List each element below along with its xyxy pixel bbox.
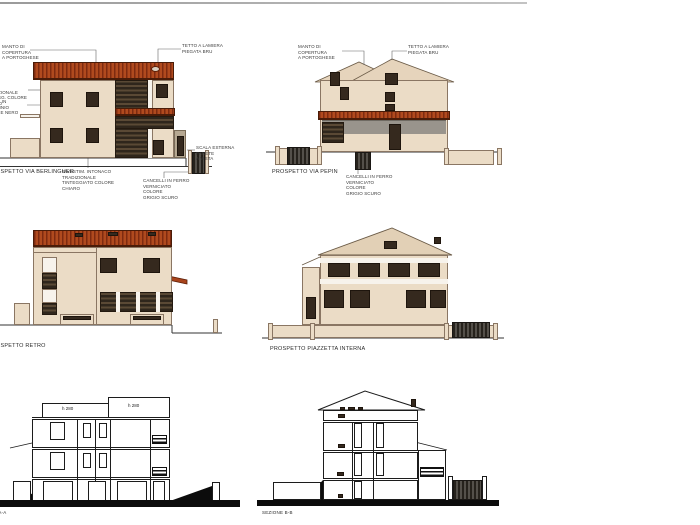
annotation-sheet-metal-roof: TETTO A LAMIERA PIEGATA BRU bbox=[182, 43, 224, 54]
window bbox=[385, 104, 395, 111]
gate bbox=[452, 322, 490, 338]
door bbox=[83, 453, 91, 468]
p1-ground-lines bbox=[0, 158, 212, 167]
p4-annex-roof-line bbox=[302, 257, 320, 265]
drawing-title: PROSPETTO VIA BERLINGUER bbox=[0, 169, 74, 175]
annex-panels bbox=[322, 122, 344, 143]
p5-awning-line bbox=[10, 443, 32, 448]
window bbox=[340, 87, 349, 100]
annex-wall bbox=[13, 481, 31, 502]
radiator-mark bbox=[338, 494, 343, 498]
drawing-title: PROSPETTO PIAZZETTA INTERNA bbox=[270, 346, 365, 352]
window bbox=[385, 92, 395, 102]
door bbox=[354, 423, 362, 448]
interior-wall bbox=[373, 422, 374, 500]
balcony-railing bbox=[115, 116, 174, 129]
ground-opening bbox=[43, 481, 73, 501]
floor-slab bbox=[323, 478, 418, 481]
gate bbox=[453, 480, 482, 500]
low-wall bbox=[10, 138, 40, 158]
attic-mark bbox=[348, 407, 355, 410]
drawing-title: SEZIONE A-A bbox=[0, 510, 6, 515]
annotation-roof-covering: MANTO DI COPERTURA A PORTOGHESE bbox=[2, 44, 44, 61]
window bbox=[50, 92, 63, 107]
height-label: h 280 bbox=[62, 406, 73, 411]
facade-divider bbox=[96, 247, 97, 325]
door bbox=[376, 423, 384, 448]
gate bbox=[287, 147, 310, 165]
gable-window bbox=[330, 72, 340, 86]
floor-slab bbox=[323, 420, 418, 423]
section-body bbox=[323, 410, 418, 500]
radiator-mark bbox=[337, 472, 344, 476]
window bbox=[50, 452, 65, 470]
attic-mark bbox=[340, 407, 345, 410]
planter-shadow bbox=[133, 316, 161, 320]
wall-pillar bbox=[317, 146, 322, 165]
ground-band bbox=[0, 500, 240, 507]
annotation-sheet-metal-roof: TETTO A LAMIERA PIEGATA BRU bbox=[408, 44, 450, 55]
low-wall bbox=[14, 303, 30, 325]
planter-shadow bbox=[63, 316, 91, 320]
panel-prospetto-retro: PROSPETTO RETRO bbox=[0, 215, 240, 360]
french-window bbox=[42, 289, 57, 303]
porch-column bbox=[156, 292, 160, 312]
panel-prospetto-piazzetta: PROSPETTO PIAZZETTA INTERNA bbox=[262, 215, 504, 360]
door bbox=[99, 423, 107, 438]
wall-pillar bbox=[493, 323, 498, 340]
door bbox=[153, 140, 164, 155]
boundary-wall bbox=[444, 150, 494, 165]
low-wall bbox=[273, 482, 321, 500]
porch-opening bbox=[406, 290, 426, 308]
drawing-title: SEZIONE B-B bbox=[262, 510, 293, 515]
floor-band bbox=[320, 279, 448, 284]
wall-pillar bbox=[275, 146, 280, 165]
window bbox=[50, 422, 65, 440]
door bbox=[354, 453, 362, 476]
annotation-window-frames: INFISSI IN ALLUMINIO COLORE NERO bbox=[0, 99, 30, 116]
panel-prospetto-via-pepin: MANTO DI COPERTURA A PORTOGHESE TETTO A … bbox=[262, 40, 502, 200]
interior-wall bbox=[77, 420, 78, 502]
small-gate bbox=[355, 152, 371, 170]
french-window bbox=[42, 257, 57, 273]
roof-vent bbox=[75, 233, 83, 237]
window bbox=[50, 128, 63, 143]
window bbox=[100, 258, 117, 273]
attic-mark bbox=[358, 407, 363, 410]
wall-pillar bbox=[444, 148, 449, 165]
railing-panel bbox=[42, 273, 57, 289]
panel-prospetto-via-berlinguer: MANTO DI COPERTURA A PORTOGHESE TETTO A … bbox=[0, 40, 240, 200]
ground-band bbox=[257, 500, 499, 506]
p6-roof-gable bbox=[318, 391, 425, 410]
stairs-hatch bbox=[152, 435, 167, 444]
annotation-gates: CANCELLI IN FERRO VERNICIATO COLORE GRIG… bbox=[346, 174, 394, 197]
ground-opening bbox=[88, 481, 106, 501]
ground-opening bbox=[153, 481, 165, 501]
door bbox=[376, 453, 384, 476]
ground-opening bbox=[117, 481, 147, 501]
height-label: h 280 bbox=[128, 403, 139, 408]
fence-post bbox=[212, 482, 220, 502]
drawing-title: PROSPETTO RETRO bbox=[0, 343, 46, 349]
balcony-roof-band bbox=[115, 108, 175, 116]
parapet-line bbox=[33, 252, 96, 253]
door bbox=[83, 423, 91, 438]
loggia-opening bbox=[358, 263, 380, 277]
attic-window bbox=[385, 73, 398, 85]
panel-sezione-a-a: h 280 h 280 SEZIONE A-A bbox=[0, 388, 245, 525]
porch-opening bbox=[350, 290, 370, 308]
annex-panel bbox=[306, 297, 316, 319]
wall-pillar bbox=[310, 323, 315, 340]
stairs-hatch bbox=[420, 467, 444, 477]
gate-pillar bbox=[482, 476, 487, 500]
panel-sezione-b-b: SEZIONE B-B bbox=[255, 388, 500, 525]
fence-post bbox=[213, 319, 218, 333]
door bbox=[354, 481, 362, 499]
loggia-opening bbox=[328, 263, 350, 277]
roof-room-right bbox=[108, 397, 170, 419]
window bbox=[143, 258, 160, 273]
chimney bbox=[411, 399, 416, 407]
radiator-mark bbox=[338, 444, 345, 448]
garage-door bbox=[177, 136, 184, 156]
railing-panel bbox=[42, 303, 57, 315]
drawing-title: PROSPETTO VIA PEPIN bbox=[272, 169, 338, 175]
wall-pillar bbox=[444, 323, 449, 340]
sheet-top-border bbox=[0, 2, 527, 4]
interior-wall bbox=[150, 420, 151, 502]
porch-column bbox=[116, 292, 120, 312]
wall-pillar bbox=[497, 148, 502, 165]
roof-vent bbox=[108, 232, 118, 236]
porch-column bbox=[136, 292, 140, 312]
wall-pillar bbox=[268, 323, 273, 340]
interior-wall bbox=[110, 420, 111, 502]
door bbox=[389, 124, 401, 150]
annotation-external-stair: SCALA ESTERNA PARETE A VISTA bbox=[196, 145, 238, 162]
annotation-gates: CANCELLI IN FERRO VERNICIATO COLORE GRIG… bbox=[143, 178, 191, 201]
loggia-opening bbox=[388, 263, 410, 277]
roof-vent bbox=[151, 66, 160, 72]
architectural-drawing-sheet: MANTO DI COPERTURA A PORTOGHESE TETTO A … bbox=[0, 0, 700, 525]
annotation-roof-covering: MANTO DI COPERTURA A PORTOGHESE bbox=[298, 44, 342, 61]
window bbox=[156, 84, 168, 98]
chimney bbox=[434, 237, 441, 244]
radiator-mark bbox=[338, 414, 345, 418]
loggia-opening bbox=[418, 263, 440, 277]
roof-vent bbox=[148, 232, 156, 236]
porch-opening bbox=[324, 290, 344, 308]
window bbox=[86, 128, 99, 143]
stairs-hatch bbox=[152, 467, 167, 476]
porch-roof-band bbox=[318, 111, 450, 120]
p6-annex-roof-line bbox=[415, 442, 447, 450]
door bbox=[99, 453, 107, 468]
attic-window bbox=[384, 241, 397, 249]
window bbox=[86, 92, 99, 107]
porch-opening bbox=[430, 290, 446, 308]
interior-wall bbox=[352, 422, 353, 500]
p3-ground-lines bbox=[0, 325, 222, 333]
floor-slab bbox=[323, 450, 418, 453]
